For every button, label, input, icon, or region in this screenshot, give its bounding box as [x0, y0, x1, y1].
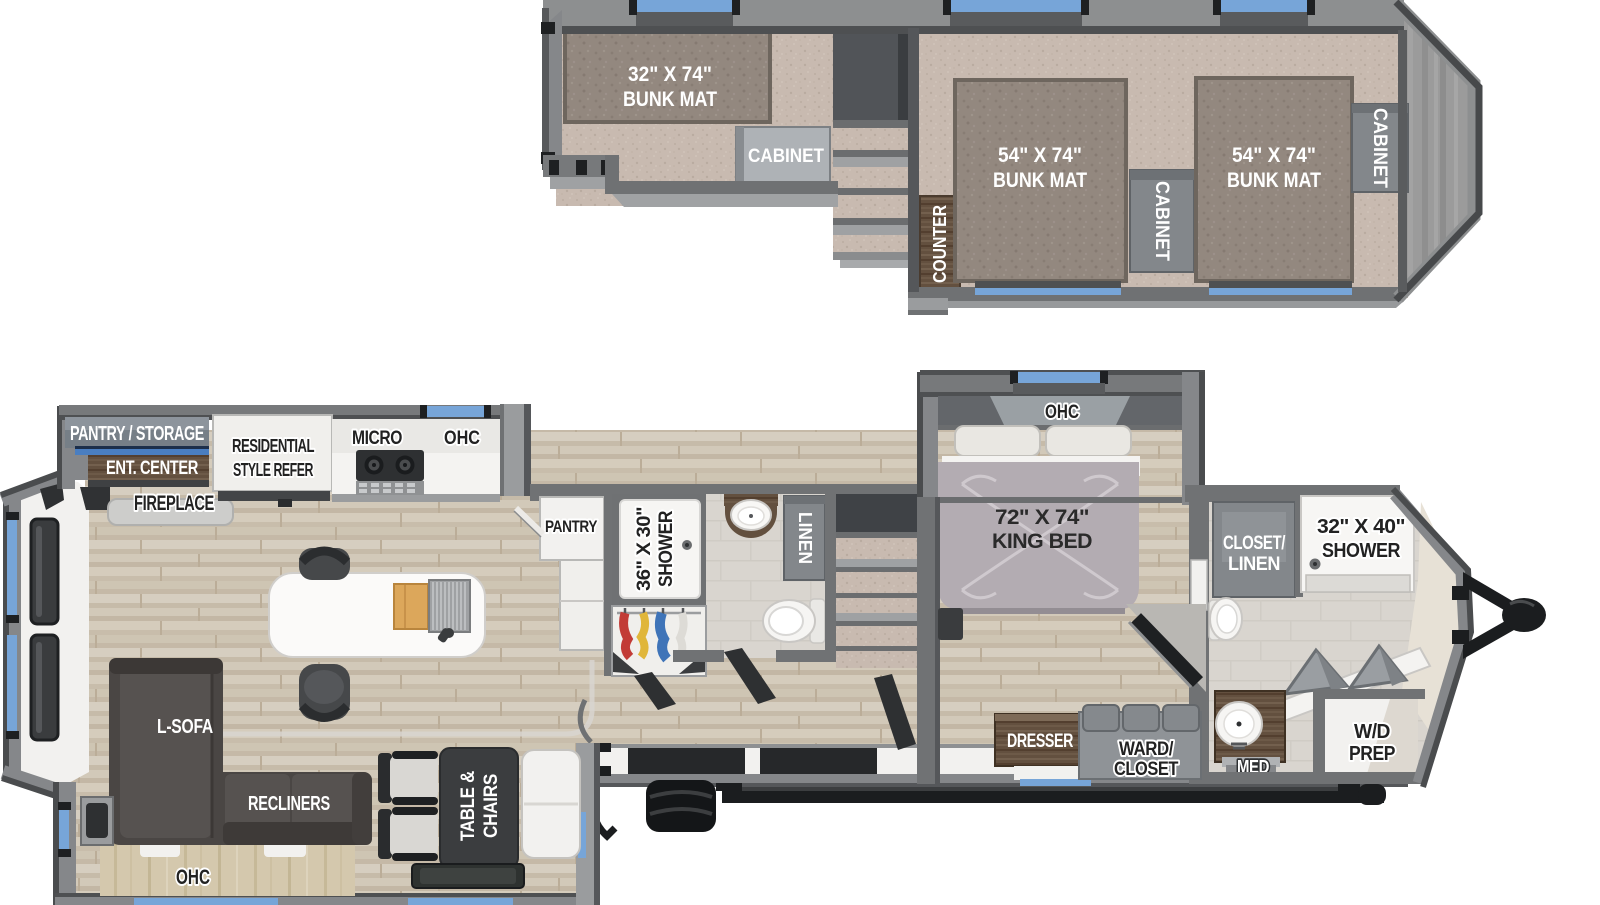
- svg-text:72" X 74": 72" X 74": [995, 506, 1089, 529]
- svg-text:WARD/: WARD/: [1119, 739, 1174, 760]
- svg-text:TABLE &: TABLE &: [458, 770, 479, 841]
- svg-text:OHC: OHC: [176, 866, 210, 889]
- svg-text:CLOSET/: CLOSET/: [1223, 533, 1286, 554]
- svg-text:BUNK MAT: BUNK MAT: [1227, 169, 1321, 192]
- svg-text:COUNTER: COUNTER: [930, 205, 950, 283]
- svg-text:PREP: PREP: [1349, 743, 1395, 765]
- svg-text:ENT. CENTER: ENT. CENTER: [106, 458, 199, 479]
- svg-text:SHOWER: SHOWER: [656, 510, 677, 587]
- svg-text:PANTRY: PANTRY: [545, 517, 598, 536]
- svg-text:CABINET: CABINET: [1151, 181, 1172, 261]
- svg-text:LINEN: LINEN: [795, 512, 815, 564]
- svg-text:32" X 74": 32" X 74": [628, 63, 712, 86]
- svg-text:MICRO: MICRO: [352, 428, 402, 449]
- svg-text:OHC: OHC: [1045, 402, 1079, 423]
- svg-text:LINEN: LINEN: [1228, 554, 1280, 575]
- svg-text:L-SOFA: L-SOFA: [157, 716, 213, 738]
- svg-text:KING BED: KING BED: [992, 530, 1092, 553]
- svg-text:BUNK MAT: BUNK MAT: [623, 88, 717, 111]
- svg-text:BUNK MAT: BUNK MAT: [993, 169, 1087, 192]
- svg-text:CHAIRS: CHAIRS: [481, 774, 502, 838]
- svg-text:CABINET: CABINET: [748, 146, 824, 167]
- svg-text:54" X 74": 54" X 74": [1232, 144, 1316, 167]
- svg-text:54" X 74": 54" X 74": [998, 144, 1082, 167]
- svg-text:STYLE REFER: STYLE REFER: [233, 460, 313, 480]
- svg-text:W/D: W/D: [1354, 721, 1390, 743]
- svg-text:36" X 30": 36" X 30": [634, 507, 655, 591]
- svg-text:32" X 40": 32" X 40": [1317, 516, 1405, 538]
- svg-text:CLOSET: CLOSET: [1114, 759, 1179, 780]
- svg-text:CABINET: CABINET: [1369, 108, 1390, 188]
- svg-text:DRESSER: DRESSER: [1007, 731, 1074, 752]
- svg-text:FIREPLACE: FIREPLACE: [134, 492, 214, 515]
- svg-text:RECLINERS: RECLINERS: [248, 793, 330, 815]
- svg-text:RESIDENTIAL: RESIDENTIAL: [232, 436, 315, 456]
- svg-text:OHC: OHC: [444, 428, 480, 449]
- svg-text:SHOWER: SHOWER: [1322, 540, 1401, 562]
- svg-text:PANTRY / STORAGE: PANTRY / STORAGE: [70, 423, 204, 445]
